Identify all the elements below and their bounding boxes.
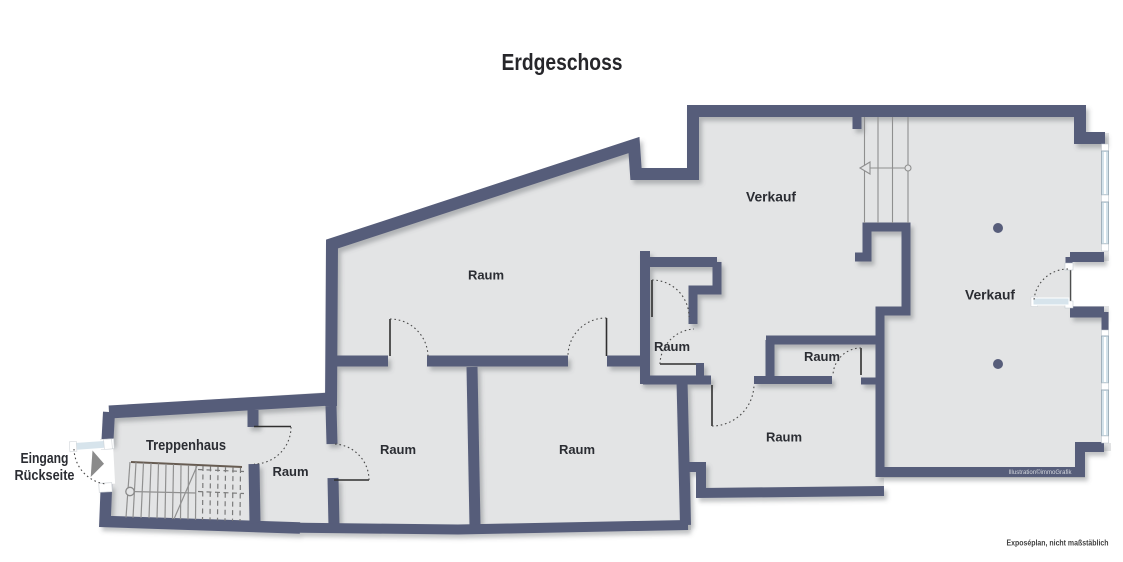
svg-text:Eingang: Eingang [21,450,69,467]
svg-text:Illustration©immoGrafik: Illustration©immoGrafik [1009,469,1073,476]
svg-text:Raum: Raum [272,464,308,479]
svg-text:Exposéplan, nicht maßstäblich: Exposéplan, nicht maßstäblich [1007,539,1109,548]
svg-text:Erdgeschoss: Erdgeschoss [502,49,623,75]
svg-text:Verkauf: Verkauf [746,190,797,205]
svg-text:Raum: Raum [766,430,802,445]
svg-text:Verkauf: Verkauf [965,288,1016,303]
svg-text:Raum: Raum [559,442,595,457]
svg-text:Raum: Raum [804,349,840,364]
svg-text:Raum: Raum [468,268,504,283]
svg-text:Rückseite: Rückseite [15,467,75,484]
svg-text:Raum: Raum [380,442,416,457]
svg-text:Treppenhaus: Treppenhaus [146,437,226,454]
svg-text:Raum: Raum [654,339,690,354]
